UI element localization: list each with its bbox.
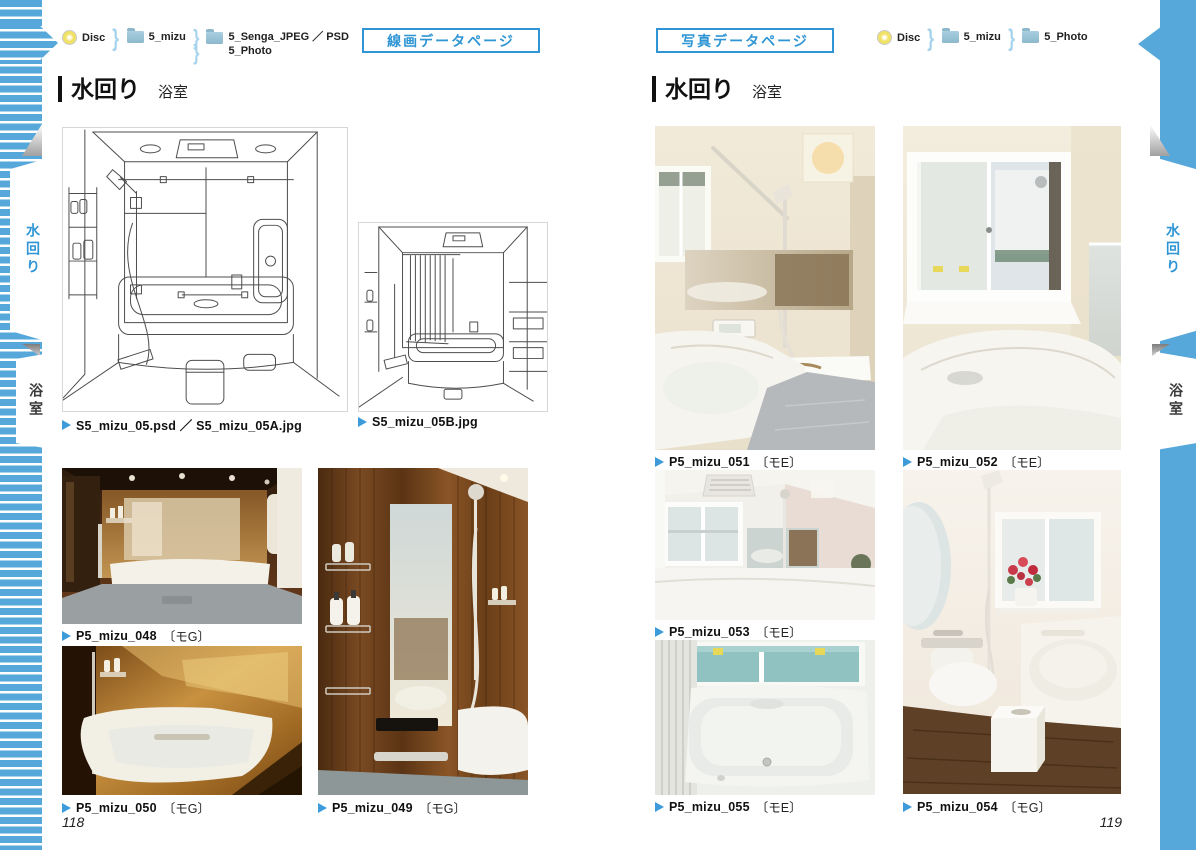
side-tab-water-right: 水回り <box>1150 156 1196 344</box>
section-header-left: 水回り 浴室 <box>58 76 188 102</box>
breadcrumb-label: Disc <box>82 32 105 44</box>
caption-flag-icon <box>655 802 664 812</box>
line-art-s5-mizu-05 <box>62 127 348 412</box>
photo-p5-mizu-054 <box>903 470 1121 794</box>
page-subtitle: 浴室 <box>752 81 782 102</box>
breadcrumb-label: 5_Photo <box>1044 31 1087 43</box>
breadcrumb-label: 5_mizu <box>964 31 1001 43</box>
breadcrumb-label: 5_Photo <box>228 44 348 58</box>
photo-illustration <box>655 126 875 450</box>
caption-flag-icon <box>318 803 327 813</box>
side-tab-label: 浴室 <box>26 383 46 419</box>
breadcrumb-item-folder: 5_Photo <box>1022 30 1087 43</box>
folder-icon <box>206 32 223 44</box>
section-header-right: 水回り 浴室 <box>652 76 782 102</box>
caption-s5-mizu-05b: S5_mizu_05B.jpg <box>358 415 478 429</box>
photo-p5-mizu-049 <box>318 468 528 795</box>
caption-flag-icon <box>358 417 367 427</box>
photo-p5-mizu-053 <box>655 470 875 620</box>
breadcrumb-item-disc: Disc <box>877 30 920 45</box>
line-art-illustration <box>63 128 347 411</box>
breadcrumb-label: 5_mizu <box>149 31 186 43</box>
breadcrumb-label: 5_Senga_JPEG ／ PSD <box>228 30 348 44</box>
book-spread: 水回り 浴室 水回り 浴室 Disc } 5_mizu } } 5_Senga <box>0 0 1196 850</box>
caption-flag-icon <box>62 420 71 430</box>
side-tab-bath-right: 浴室 <box>1156 352 1196 450</box>
photo-p5-mizu-050 <box>62 646 302 795</box>
breadcrumb-separator-tall-icon: } } <box>192 30 201 60</box>
page-subtitle: 浴室 <box>158 81 188 102</box>
caption-flag-icon <box>655 627 664 637</box>
breadcrumb-left-page: Disc } 5_mizu } } 5_Senga_JPEG ／ PSD 5_P… <box>62 30 349 60</box>
caption-s5-mizu-05: S5_mizu_05.psd ／ S5_mizu_05A.jpg <box>62 415 302 434</box>
photo-illustration <box>903 470 1121 794</box>
photo-p5-mizu-051 <box>655 126 875 450</box>
line-art-illustration <box>359 223 547 411</box>
page-title: 水回り <box>71 76 140 102</box>
breadcrumb-item-folder: 5_Senga_JPEG ／ PSD 5_Photo <box>206 30 348 58</box>
side-tab-label: 水回り <box>23 223 43 277</box>
caption-flag-icon <box>903 802 912 812</box>
caption-p5-mizu-054: P5_mizu_054 〔モG〕 <box>903 797 1051 816</box>
page-number-right: 119 <box>1040 814 1122 830</box>
caption-p5-mizu-055: P5_mizu_055 〔モE〕 <box>655 797 802 816</box>
side-tab-bath-left: 浴室 <box>16 352 56 450</box>
page-type-label-senga: 線画データページ <box>362 28 540 53</box>
page-type-label-photo: 写真データページ <box>656 28 834 53</box>
breadcrumb-right-page: Disc } 5_mizu } 5_Photo <box>877 30 1088 48</box>
caption-flag-icon <box>655 457 664 467</box>
page-title: 水回り <box>665 76 734 102</box>
folder-icon <box>942 31 959 43</box>
caption-p5-mizu-053: P5_mizu_053 〔モE〕 <box>655 622 802 641</box>
photo-illustration <box>655 470 875 620</box>
photo-p5-mizu-055 <box>655 640 875 795</box>
photo-illustration <box>62 646 302 795</box>
side-tab-label: 浴室 <box>1166 383 1186 419</box>
photo-illustration <box>318 468 528 795</box>
line-art-s5-mizu-05b <box>358 222 548 412</box>
breadcrumb-separator-icon: } <box>113 30 120 48</box>
caption-flag-icon <box>62 803 71 813</box>
left-band-arrow-icon <box>0 22 58 64</box>
breadcrumb-separator-icon: } <box>928 30 935 48</box>
breadcrumb-item-folder: 5_mizu <box>942 30 1001 43</box>
caption-p5-mizu-049: P5_mizu_049 〔モG〕 <box>318 798 466 817</box>
right-band-arrow-icon <box>1138 26 1162 62</box>
caption-flag-icon <box>62 631 71 641</box>
folder-icon <box>1022 31 1039 43</box>
page-number-left: 118 <box>62 814 84 830</box>
disc-icon <box>877 30 892 45</box>
side-tab-label: 水回り <box>1163 223 1183 277</box>
disc-icon <box>62 30 77 45</box>
folder-icon <box>127 31 144 43</box>
caption-p5-mizu-052: P5_mizu_052 〔モE〕 <box>903 452 1050 471</box>
caption-flag-icon <box>903 457 912 467</box>
breadcrumb-item-folder: 5_mizu <box>127 30 186 43</box>
breadcrumb-separator-icon: } <box>1008 30 1015 48</box>
breadcrumb-item-disc: Disc <box>62 30 105 45</box>
photo-p5-mizu-052 <box>903 126 1121 450</box>
photo-illustration <box>903 126 1121 450</box>
photo-p5-mizu-048 <box>62 468 302 624</box>
photo-illustration <box>62 468 302 624</box>
breadcrumb-label: Disc <box>897 32 920 44</box>
side-tab-water-left: 水回り <box>10 156 56 344</box>
caption-p5-mizu-048: P5_mizu_048 〔モG〕 <box>62 626 210 645</box>
caption-p5-mizu-051: P5_mizu_051 〔モE〕 <box>655 452 802 471</box>
photo-illustration <box>655 640 875 795</box>
